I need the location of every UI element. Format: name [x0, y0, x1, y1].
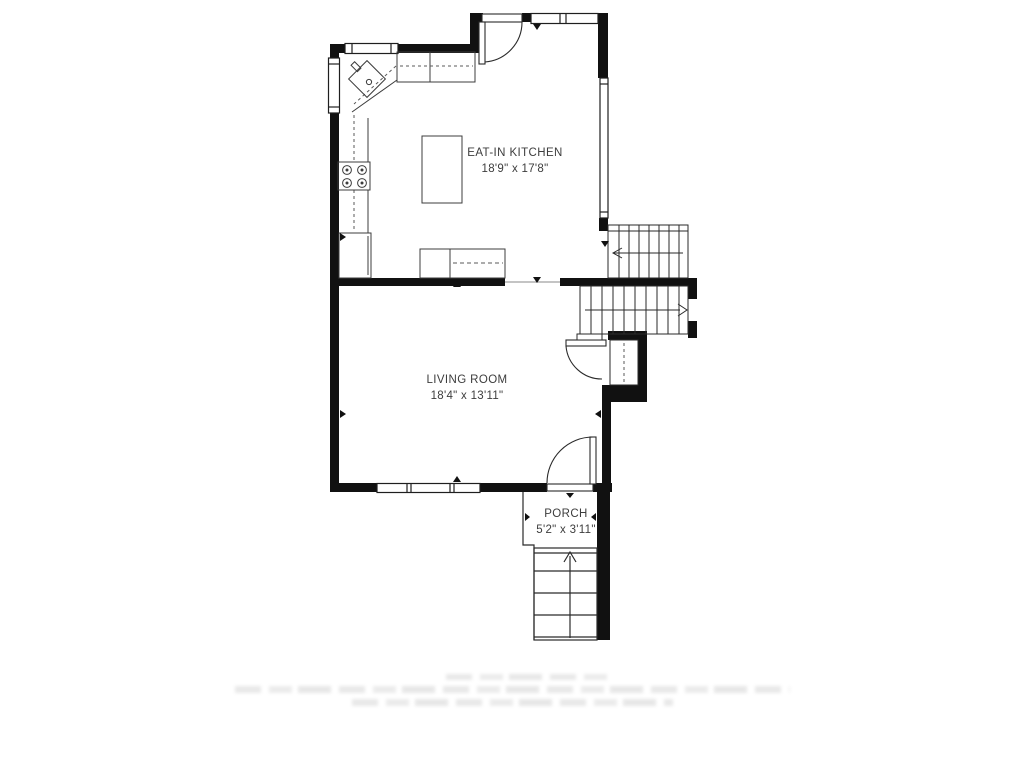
door-kitchen-entry: [479, 14, 522, 64]
kitchen-bench: [420, 249, 505, 278]
porch: [523, 492, 597, 640]
kitchen-fixtures: [338, 52, 505, 278]
windows: [329, 14, 609, 493]
door-closet: [566, 340, 606, 379]
stair-landing-edge: [577, 334, 602, 340]
kitchen-counter: [352, 52, 475, 233]
kitchen-island: [422, 136, 462, 203]
window-kitchen-left: [329, 58, 340, 113]
dimension-ticks: [340, 24, 609, 521]
floor-plan: EAT-IN KITCHEN 18'9" x 17'8" LIVING ROOM…: [0, 0, 1024, 768]
window-kitchen-top-left: [345, 44, 398, 54]
floor-plan-drawing: [0, 0, 1024, 768]
porch-edge: [523, 492, 534, 640]
doors: [479, 14, 606, 491]
window-living-bottom: [377, 484, 480, 493]
walls: [330, 13, 697, 640]
window-kitchen-right: [600, 78, 608, 218]
door-front: [547, 437, 596, 491]
window-kitchen-top-right: [531, 14, 598, 24]
stair-direction-arrow-up: [613, 248, 683, 258]
refrigerator: [339, 233, 371, 278]
closet: [610, 340, 638, 385]
porch-steps-arrow: [564, 552, 576, 638]
stove: [338, 162, 370, 190]
staircase-upper: [608, 225, 688, 278]
stair-direction-arrow-down: [585, 304, 687, 316]
porch-steps: [534, 548, 597, 640]
